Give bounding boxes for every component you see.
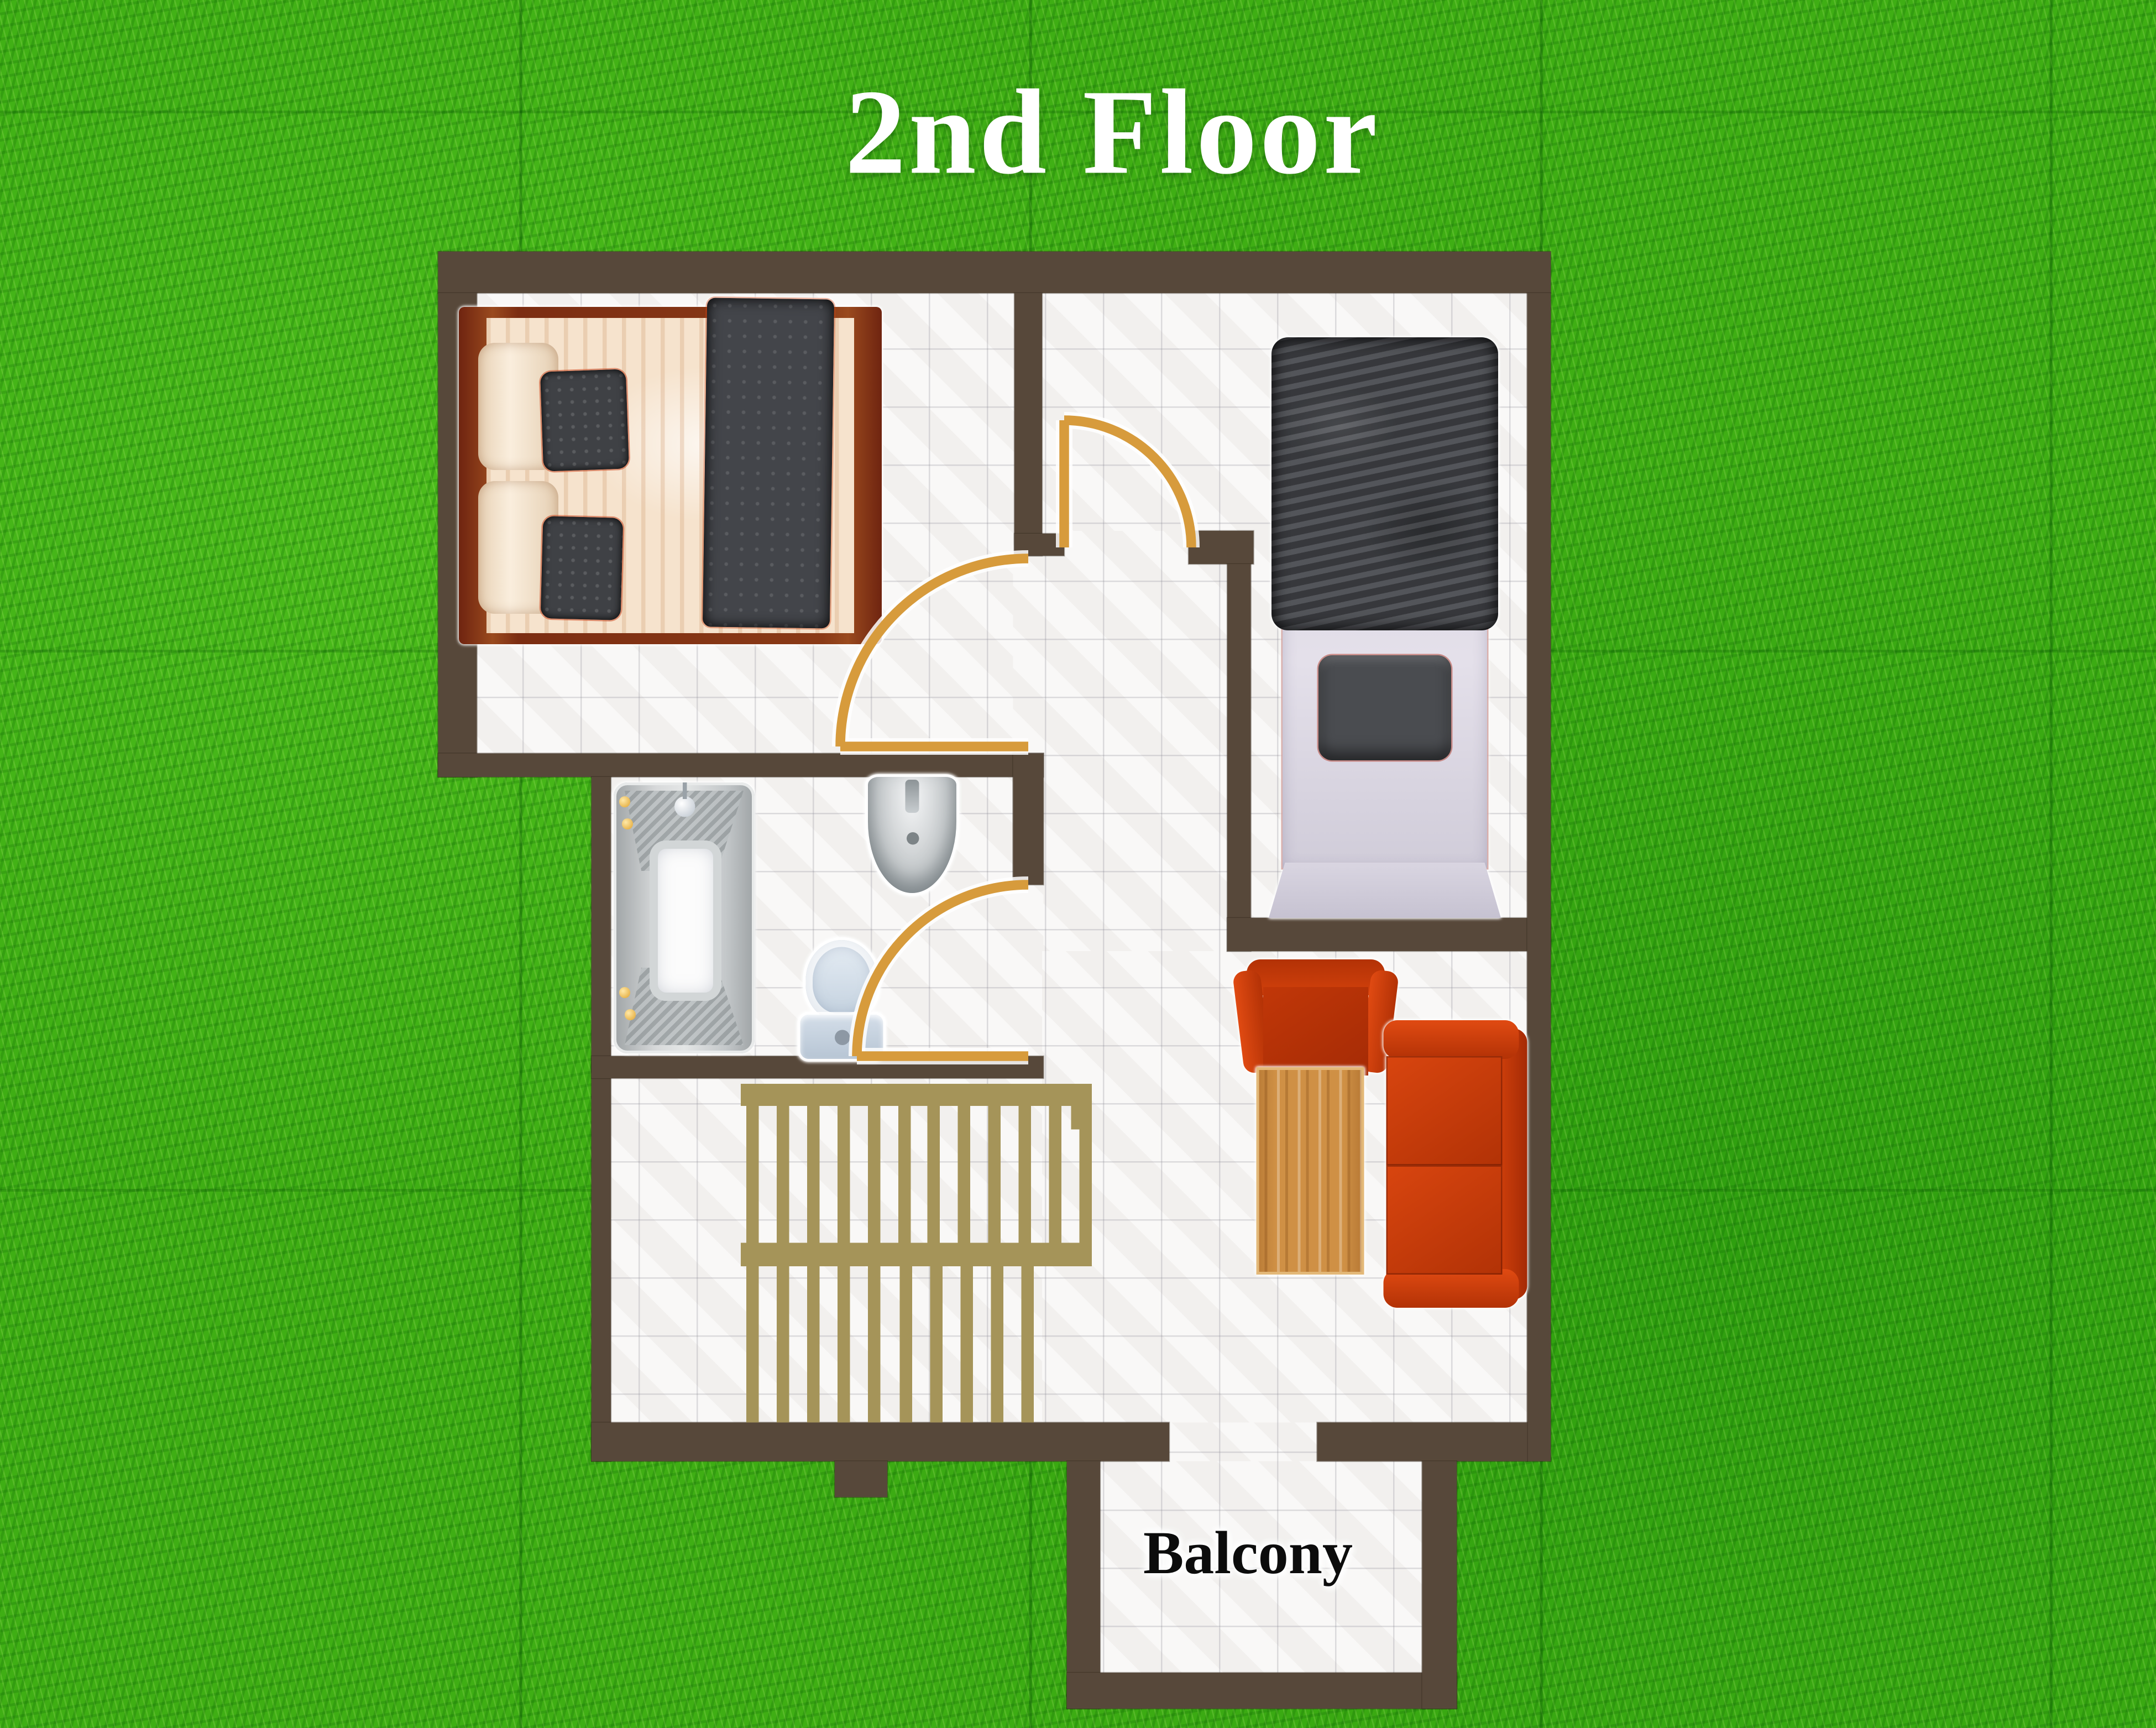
single-bed (1277, 343, 1493, 918)
balcony-right-wall (1422, 1461, 1457, 1709)
bedroom1-bottom-wall (438, 754, 1044, 777)
soap-item (625, 1009, 636, 1020)
stair-step (958, 1106, 971, 1244)
soap-item (622, 818, 633, 829)
double-bed (459, 307, 882, 644)
bedroom2-door-stub (1189, 531, 1254, 564)
stair-step (808, 1266, 820, 1423)
stair-step (746, 1266, 759, 1423)
stair-step (991, 1266, 1003, 1423)
stair-step (928, 1106, 941, 1244)
pillow (1318, 655, 1451, 760)
bathroom-bottom-wall (592, 1056, 1044, 1078)
stair-upper-flight (746, 1106, 1092, 1244)
sofa-cushion (1386, 1056, 1503, 1166)
bottom-wall-right (1317, 1423, 1527, 1461)
outer-wall-right (1527, 293, 1551, 1461)
stair-top-rail (741, 1084, 1092, 1106)
sofa-cushion (1386, 1166, 1503, 1275)
stair-step (898, 1106, 910, 1244)
balcony-doorway-floor (1169, 1423, 1317, 1461)
stair-step (746, 1106, 759, 1244)
stair-step (868, 1266, 881, 1423)
stair-step (837, 1106, 850, 1244)
stair-mid-rail (741, 1243, 1092, 1267)
shower-head (674, 796, 695, 817)
coffee-table (1257, 1067, 1364, 1275)
drain (907, 832, 919, 845)
stair-step (988, 1106, 1001, 1244)
stair-step (777, 1266, 789, 1423)
stair-step (838, 1266, 851, 1423)
stair-step (807, 1106, 820, 1244)
bottom-wall-left (592, 1423, 1169, 1461)
bed-foot-mat (1269, 863, 1501, 918)
stair-step (960, 1266, 973, 1423)
left-column-wall (592, 777, 611, 1461)
bedroom2-left-wall (1227, 564, 1251, 951)
toilet (800, 940, 883, 1059)
sofa-arm-bottom (1384, 1269, 1519, 1308)
outer-wall-top (438, 252, 1551, 293)
faucet (906, 780, 919, 813)
stair-step (777, 1106, 789, 1244)
toilet-bowl (806, 940, 878, 1020)
dark-pillow (541, 516, 624, 620)
bathroom-right-wall (1013, 754, 1044, 885)
soap-item (619, 987, 630, 998)
stair-step (930, 1266, 943, 1423)
bathtub (614, 782, 755, 1053)
stair-step (867, 1106, 880, 1244)
bedroom2-living-divider-wall (1227, 918, 1551, 951)
dark-pillow (540, 369, 629, 471)
balcony-left-wall (1067, 1461, 1100, 1709)
armchair (1238, 959, 1393, 1078)
page-title: 2nd Floor (829, 64, 1396, 203)
flush-button (835, 1030, 850, 1046)
stair-step (899, 1266, 912, 1423)
shower-hose (683, 782, 687, 799)
armchair-seat (1263, 987, 1368, 1076)
floor-plan: 2nd Floor Balcony (0, 0, 2156, 1728)
soap-item (619, 796, 630, 807)
stair-step (1079, 1106, 1092, 1244)
sofa-arm-top (1384, 1020, 1519, 1059)
stair-step (1021, 1266, 1034, 1423)
balcony-label: Balcony (1117, 1518, 1379, 1589)
bedroom1-right-wall-foot (1014, 534, 1064, 556)
stair-step (1019, 1106, 1032, 1244)
balcony-bottom-wall (1067, 1673, 1457, 1709)
stair-step (1049, 1106, 1062, 1244)
bedroom1-right-wall (1014, 293, 1042, 556)
bed-runner-blanket (703, 297, 834, 628)
sofa (1384, 1020, 1527, 1308)
tub-basin (650, 840, 721, 1001)
duvet (1271, 337, 1498, 630)
bottom-wall-tab (835, 1461, 887, 1497)
stair-lower-flight (746, 1266, 1034, 1423)
